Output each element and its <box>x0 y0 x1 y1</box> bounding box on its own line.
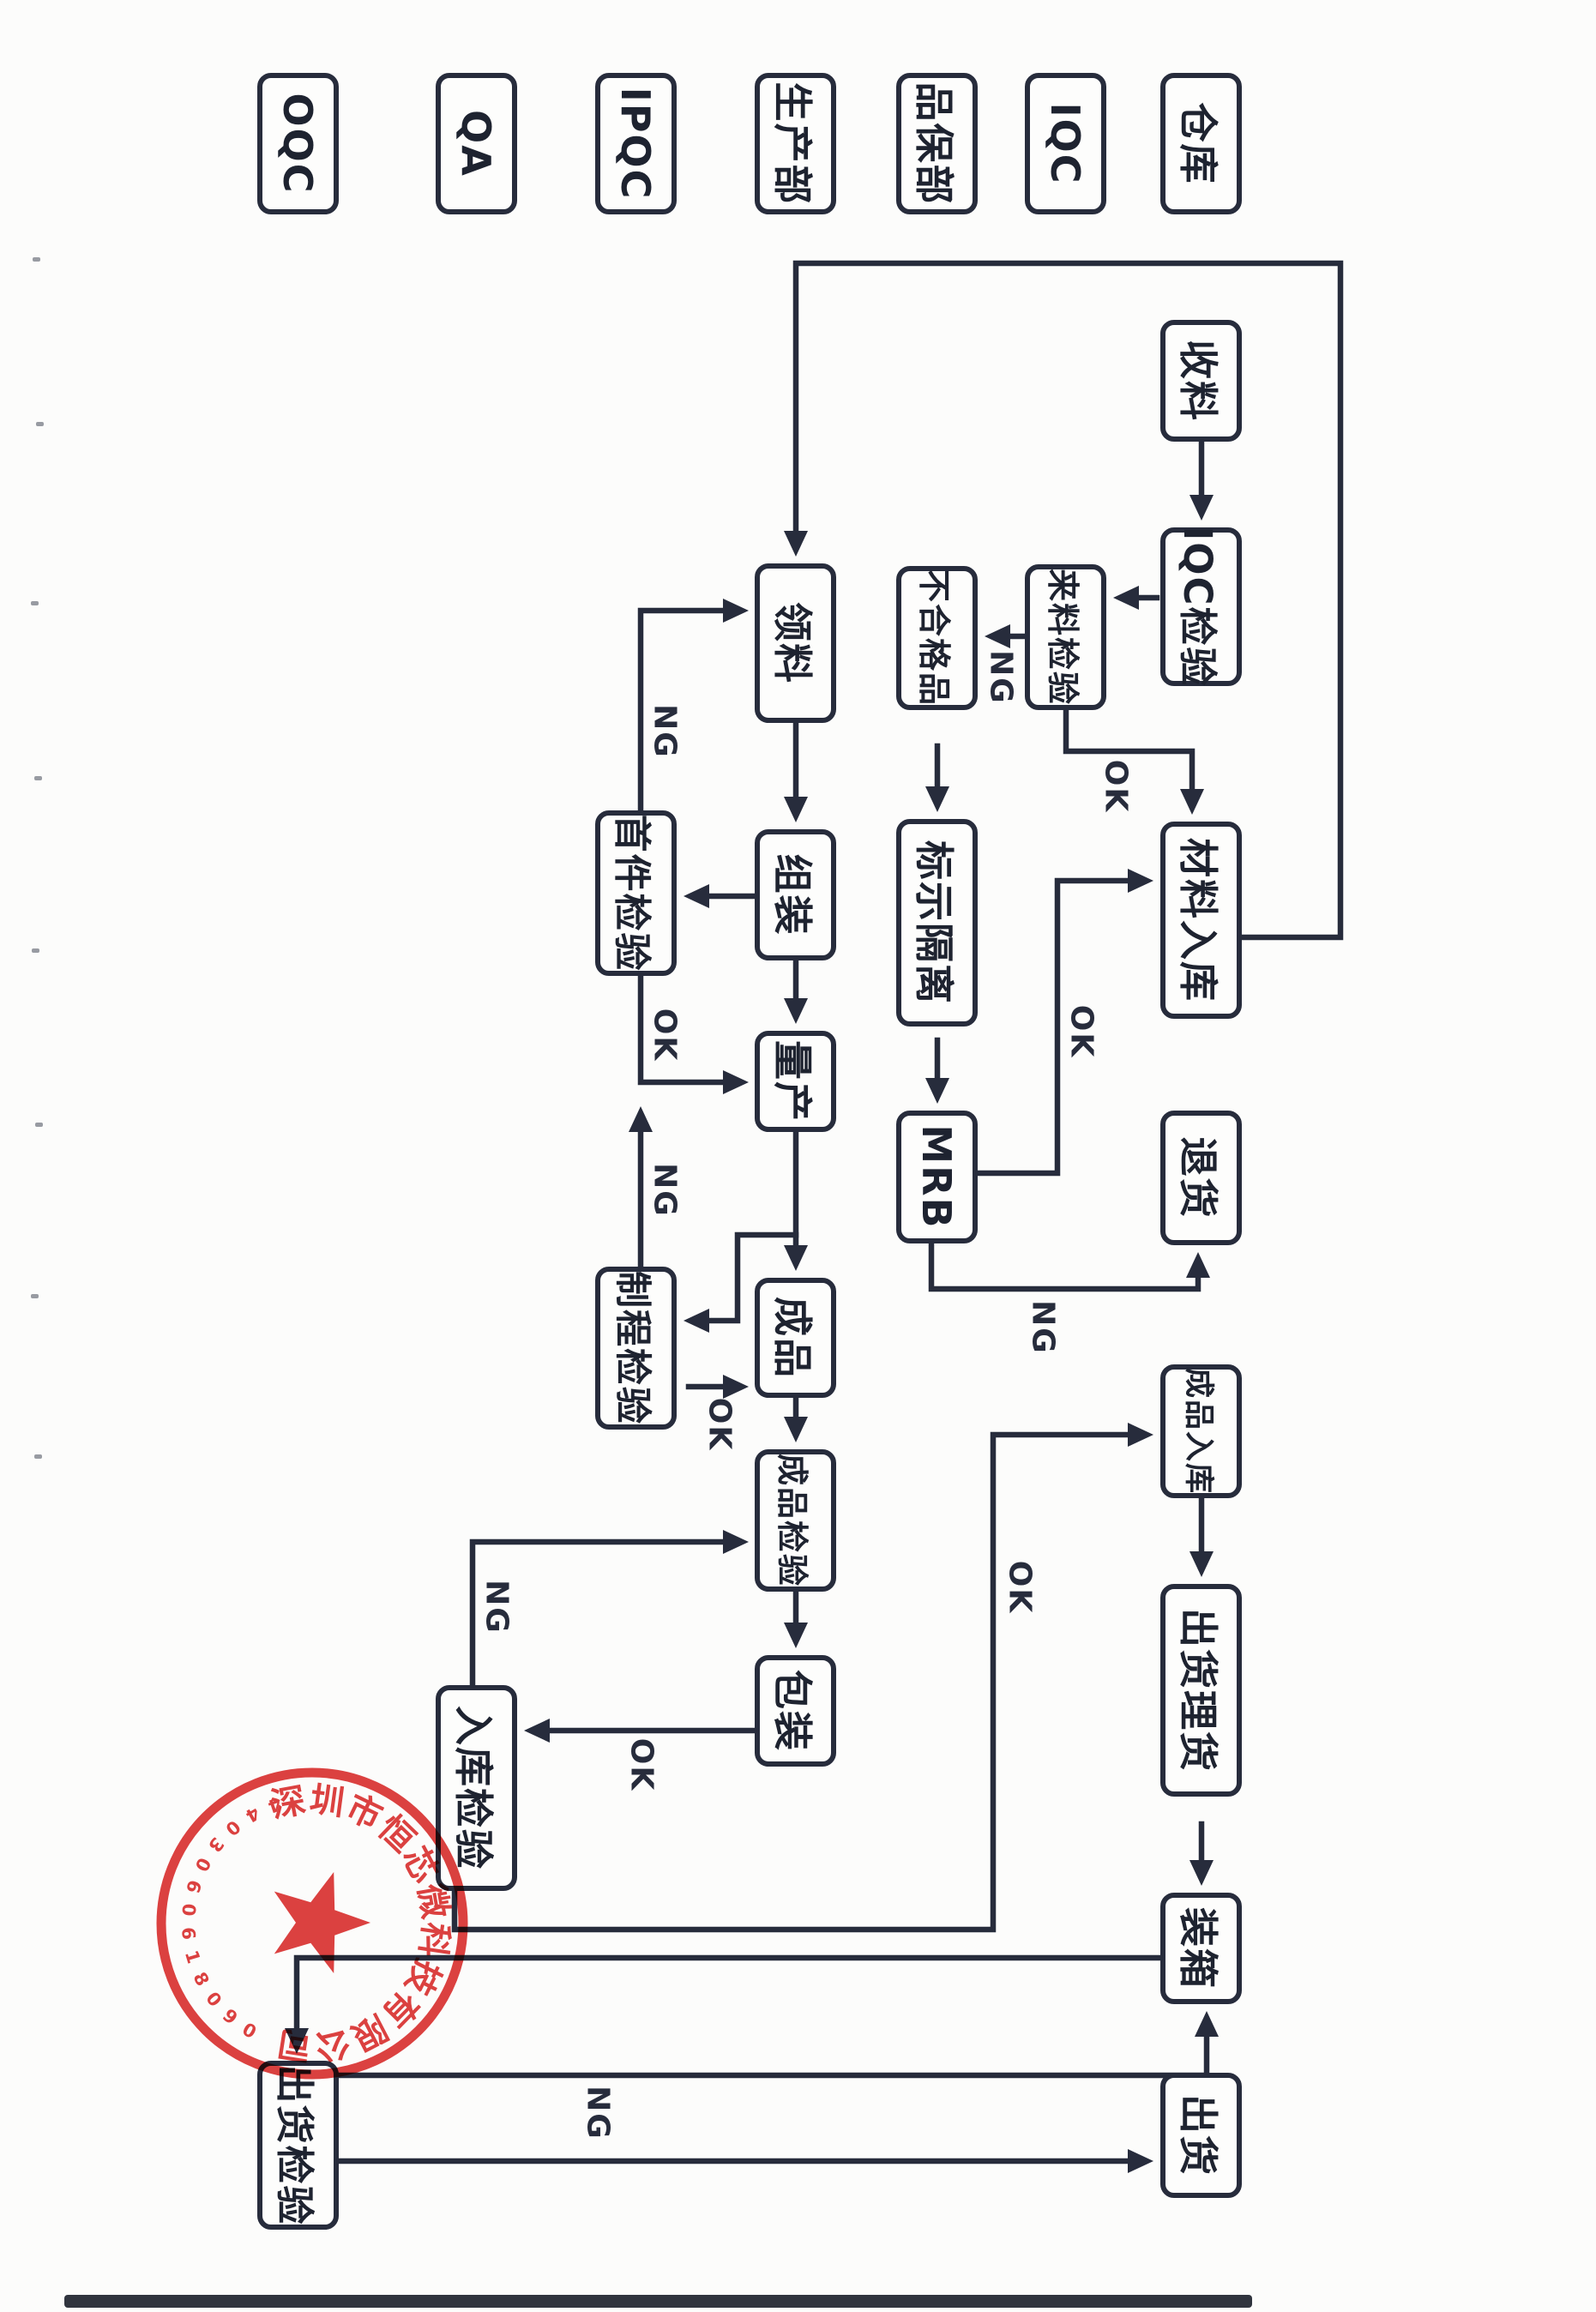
star-icon <box>274 1872 370 1973</box>
scanned-flowchart-page: 仓库IQC品保部生产部IPQCQAOQC收料IQC检验材料入库退货成品入库出货理… <box>0 0 1596 2312</box>
company-seal: 深圳市恒芯微科技有限公司4403060618090 <box>0 0 1596 2312</box>
rotated-landscape-canvas: 仓库IQC品保部生产部IPQCQAOQC收料IQC检验材料入库退货成品入库出货理… <box>0 0 1596 2312</box>
